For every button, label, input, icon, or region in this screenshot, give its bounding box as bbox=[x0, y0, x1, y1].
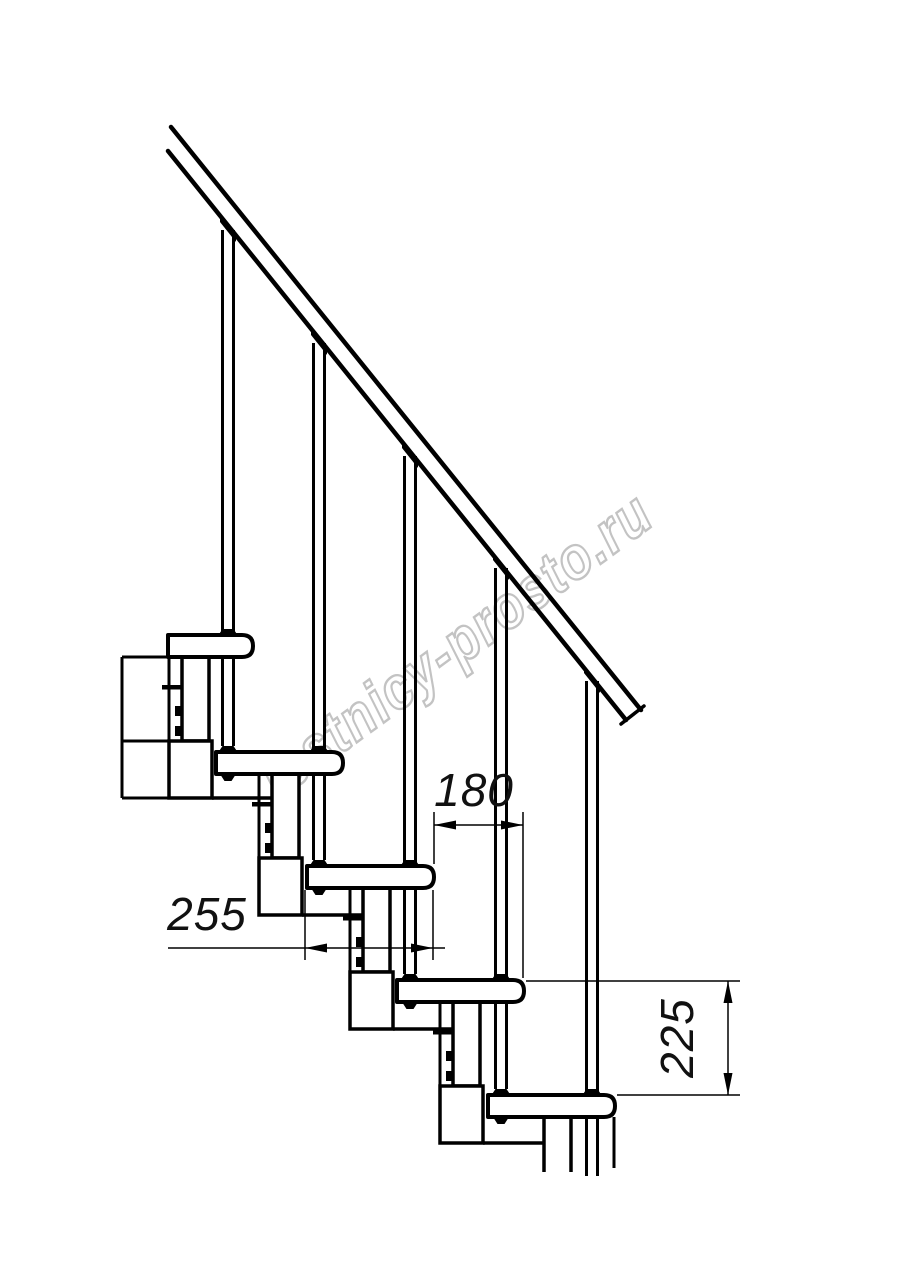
baluster-1 bbox=[219, 216, 238, 635]
bracket-tab bbox=[252, 802, 272, 807]
bolt-icon bbox=[265, 823, 273, 833]
stringer-module-1 bbox=[162, 657, 274, 798]
baluster-5 bbox=[583, 667, 602, 1095]
baluster-2 bbox=[310, 329, 329, 752]
arrow-right-icon bbox=[411, 944, 433, 953]
bolt-icon bbox=[175, 706, 183, 716]
arrow-left-icon bbox=[305, 944, 327, 953]
bracket-tab bbox=[162, 685, 182, 690]
stringer-module-3 bbox=[343, 888, 455, 1029]
drawing-page: lestnicy-prosto.ru bbox=[0, 0, 914, 1280]
dimension-label: 180 bbox=[434, 764, 514, 816]
dimension-label: 225 bbox=[651, 998, 703, 1079]
dimension-going-180: 180 bbox=[434, 764, 523, 978]
tread-1 bbox=[168, 635, 253, 657]
bolt-icon bbox=[446, 1051, 454, 1061]
arrow-up-icon bbox=[724, 981, 733, 1003]
tread-5 bbox=[488, 1095, 615, 1117]
dimension-rise-225: 225 bbox=[526, 981, 740, 1095]
stringer-module-4 bbox=[433, 1002, 545, 1143]
stair-technical-drawing: lestnicy-prosto.ru bbox=[0, 0, 914, 1280]
bracket-tab bbox=[433, 1030, 453, 1035]
tread-4 bbox=[397, 980, 524, 1002]
bolt-icon bbox=[265, 843, 273, 853]
arrow-down-icon bbox=[724, 1073, 733, 1095]
stringer-module-2 bbox=[252, 774, 364, 915]
bolt-icon bbox=[446, 1071, 454, 1081]
left-support-structure bbox=[122, 657, 169, 798]
dimension-label: 255 bbox=[166, 888, 247, 940]
stringer-module-5 bbox=[544, 1117, 614, 1172]
tread-2 bbox=[216, 752, 343, 774]
tread-3 bbox=[307, 866, 434, 888]
bracket-tab bbox=[343, 916, 363, 921]
bolt-icon bbox=[356, 937, 364, 947]
arrow-left-icon bbox=[434, 821, 456, 830]
bolt-icon bbox=[175, 726, 183, 736]
arrow-right-icon bbox=[501, 821, 523, 830]
bolt-icon bbox=[356, 957, 364, 967]
baluster-5-lower-segment bbox=[587, 1117, 598, 1176]
